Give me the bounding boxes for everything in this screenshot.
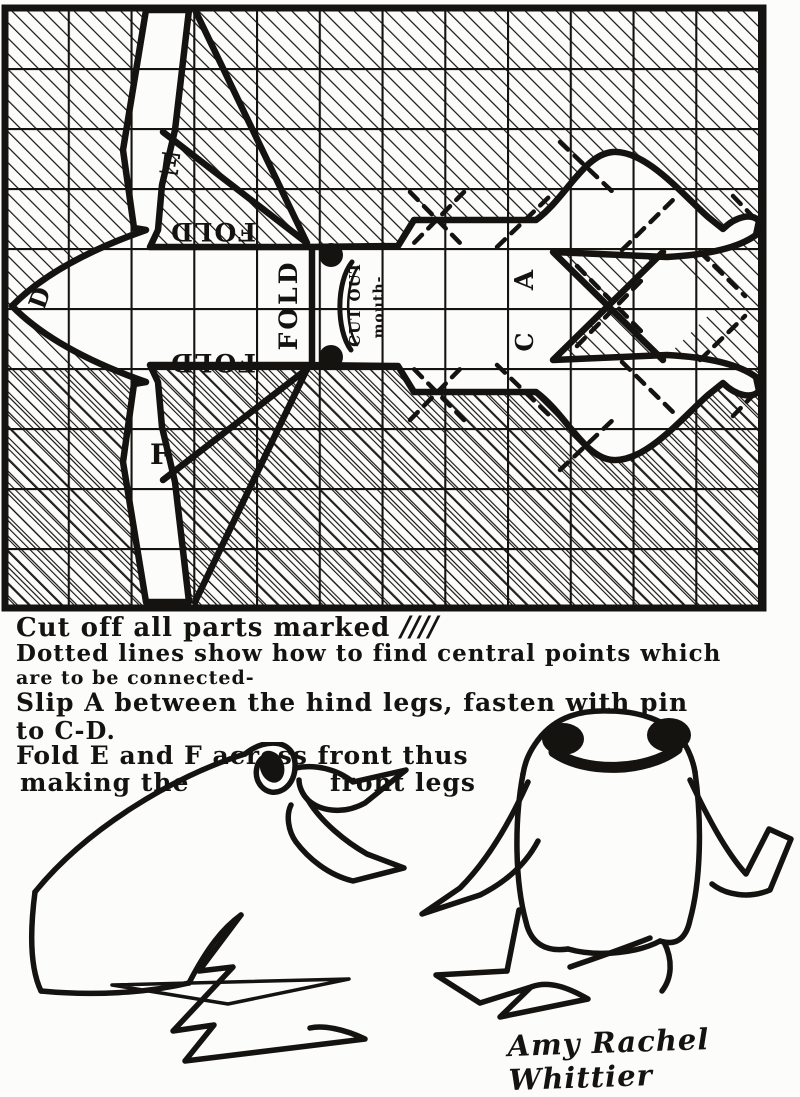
label-cut-out: CUT OUT bbox=[346, 261, 364, 347]
finished-frog-front-view bbox=[418, 698, 800, 1048]
label-flap-f: F bbox=[150, 438, 170, 471]
frog-front-eye-left bbox=[542, 723, 584, 755]
instruction-line-1: Cut off all parts marked//// bbox=[16, 610, 437, 643]
pattern-eye-top bbox=[319, 243, 343, 267]
label-point-a: A bbox=[510, 269, 540, 291]
label-point-c: C bbox=[510, 332, 539, 351]
label-fold-head: FOLD bbox=[274, 260, 303, 351]
pattern-eye-bottom bbox=[319, 345, 343, 369]
cut-pattern-diagram: E FOLD FOLD FOLD CUT OUT mouth- A C D F bbox=[0, 0, 800, 612]
instruction-line-3: are to be connected- bbox=[16, 667, 255, 689]
instruction-text: Cut off all parts marked bbox=[16, 613, 390, 643]
frog-side-outline bbox=[32, 743, 406, 1061]
label-fold-top: FOLD bbox=[169, 217, 256, 246]
frog-front-outline bbox=[422, 711, 791, 1017]
label-fold-bottom: FOLD bbox=[169, 348, 256, 377]
scanned-craft-page: E FOLD FOLD FOLD CUT OUT mouth- A C D F … bbox=[0, 0, 800, 1082]
instruction-line-2: Dotted lines show how to find central po… bbox=[16, 640, 721, 667]
label-mouth: mouth- bbox=[371, 276, 387, 339]
hatch-marks-glyph: //// bbox=[400, 610, 437, 643]
artist-signature: Amy Rachel Whittier bbox=[507, 1019, 800, 1097]
frog-front-eye-right bbox=[647, 718, 691, 752]
label-flap-e: E bbox=[157, 146, 183, 182]
finished-frog-side-view bbox=[15, 742, 420, 1077]
